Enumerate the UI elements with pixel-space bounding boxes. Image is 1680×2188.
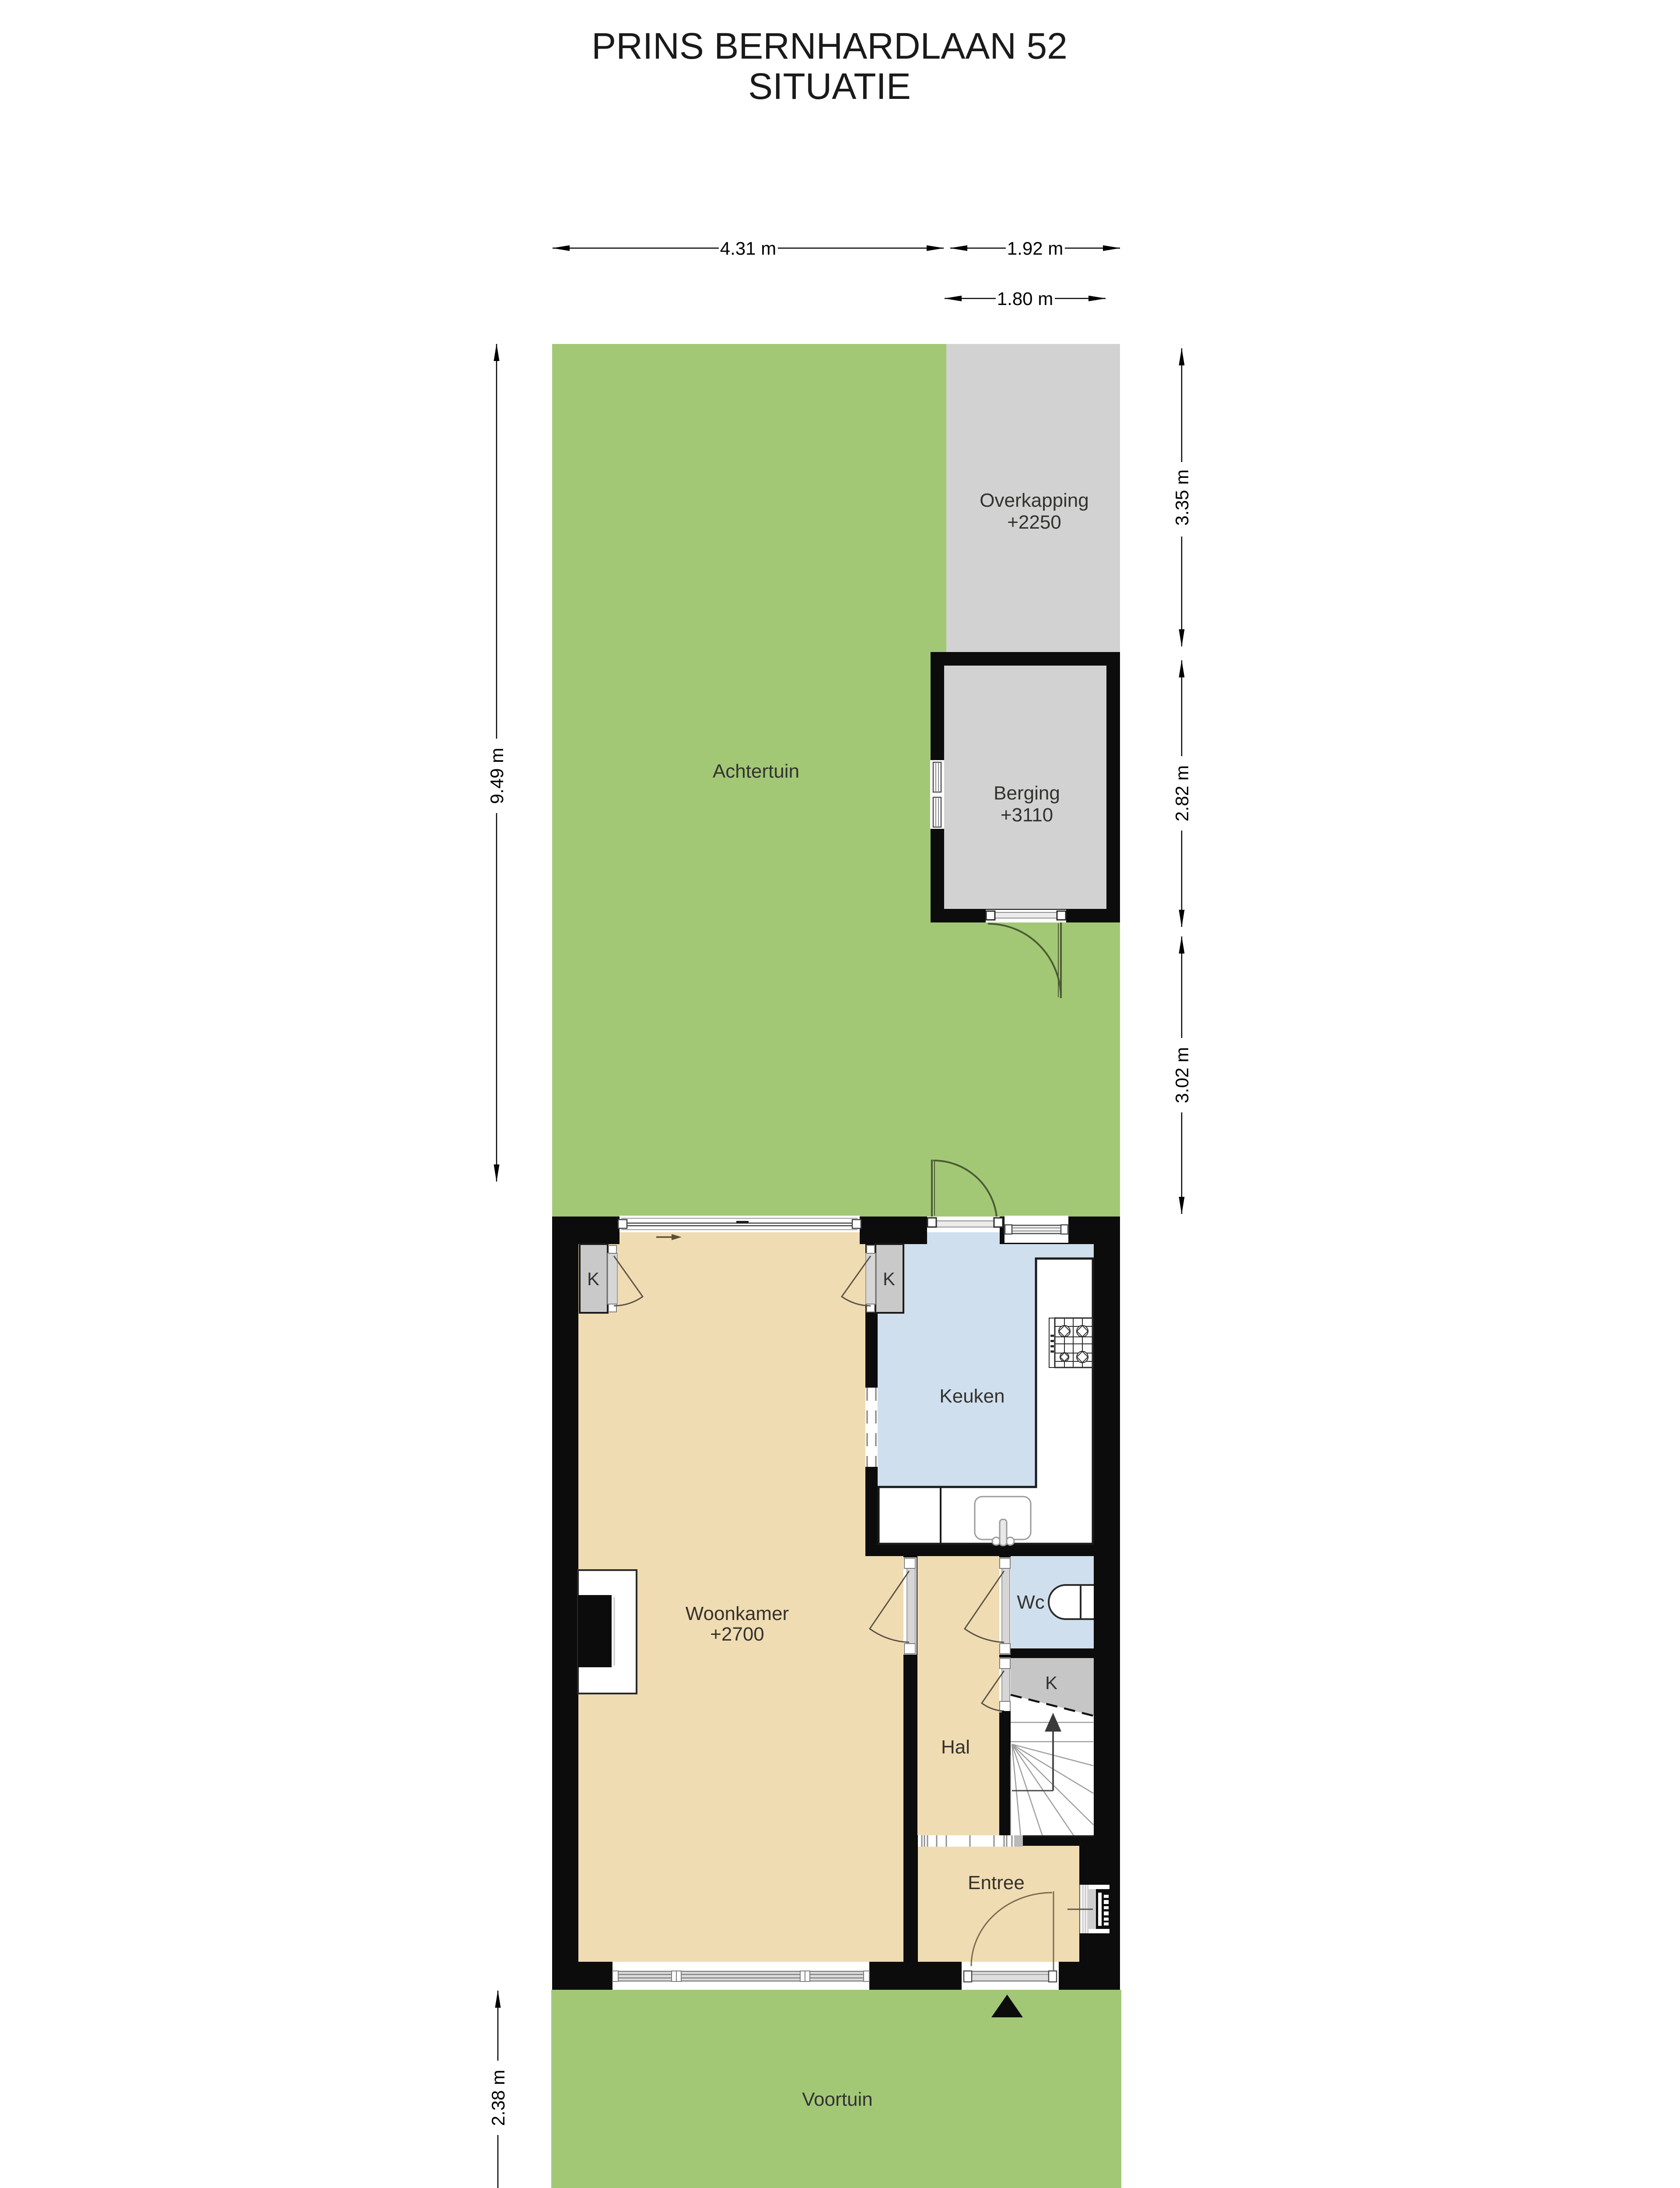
svg-text:Berging: Berging [994, 782, 1060, 804]
svg-text:2.38 m: 2.38 m [488, 2070, 508, 2126]
svg-text:1.92 m: 1.92 m [1007, 238, 1063, 259]
svg-text:K: K [587, 1269, 599, 1289]
svg-text:3.02 m: 3.02 m [1172, 1047, 1192, 1103]
svg-text:Woonkamer: Woonkamer [686, 1603, 789, 1624]
svg-text:Overkapping: Overkapping [980, 490, 1088, 511]
svg-text:4.31 m: 4.31 m [720, 238, 776, 259]
svg-text:Entree: Entree [968, 1872, 1025, 1893]
svg-text:Voortuin: Voortuin [802, 2089, 872, 2110]
svg-text:+2700: +2700 [710, 1623, 764, 1645]
svg-text:+3110: +3110 [1001, 804, 1053, 826]
svg-text:SITUATIE: SITUATIE [748, 66, 911, 107]
svg-text:Keuken: Keuken [939, 1385, 1004, 1407]
svg-text:9.49 m: 9.49 m [486, 748, 507, 804]
svg-text:K: K [1045, 1673, 1057, 1693]
svg-text:2.82 m: 2.82 m [1172, 765, 1192, 821]
svg-text:3.35 m: 3.35 m [1172, 470, 1192, 526]
svg-text:PRINS BERNHARDLAAN 52: PRINS BERNHARDLAAN 52 [591, 25, 1067, 67]
svg-text:Achtertuin: Achtertuin [713, 761, 799, 782]
svg-text:K: K [883, 1269, 895, 1289]
svg-text:+2250: +2250 [1007, 512, 1061, 533]
svg-text:1.80 m: 1.80 m [997, 288, 1053, 309]
svg-text:Wc: Wc [1017, 1592, 1045, 1613]
svg-text:Hal: Hal [941, 1736, 970, 1758]
